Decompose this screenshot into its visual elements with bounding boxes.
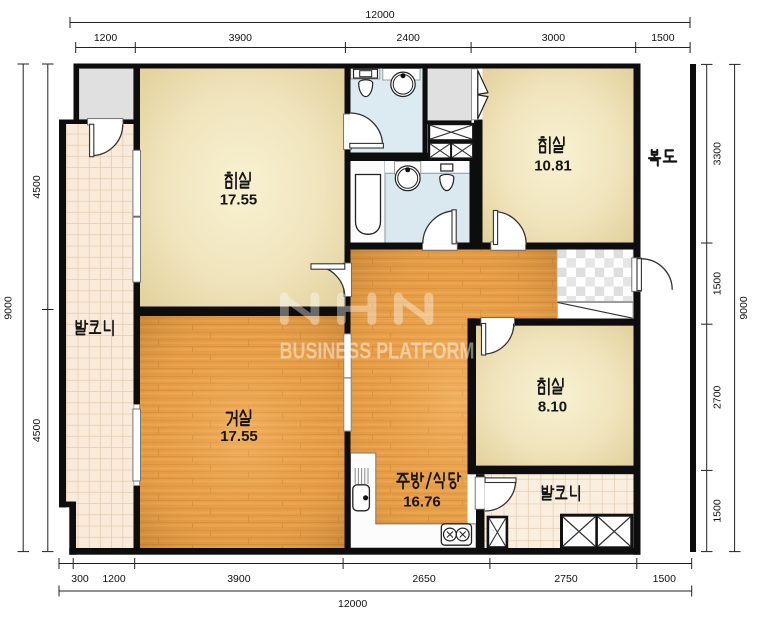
svg-text:17.55: 17.55 — [220, 192, 258, 209]
svg-text:1200: 1200 — [102, 573, 126, 585]
svg-text:2700: 2700 — [712, 385, 724, 409]
svg-text:1200: 1200 — [94, 32, 118, 44]
svg-text:1500: 1500 — [712, 272, 724, 296]
svg-text:4500: 4500 — [31, 419, 43, 443]
svg-text:9000: 9000 — [738, 296, 750, 320]
svg-text:9000: 9000 — [3, 296, 15, 320]
svg-text:8.10: 8.10 — [538, 399, 567, 416]
svg-text:3900: 3900 — [227, 573, 251, 585]
svg-text:BUSINESS PLATFORM: BUSINESS PLATFORM — [280, 338, 475, 364]
svg-text:3000: 3000 — [542, 32, 566, 44]
svg-text:17.55: 17.55 — [220, 428, 258, 445]
svg-text:16.76: 16.76 — [403, 494, 441, 511]
svg-text:3900: 3900 — [229, 32, 253, 44]
svg-text:300: 300 — [71, 573, 89, 585]
svg-text:3300: 3300 — [712, 142, 724, 166]
svg-text:1500: 1500 — [653, 573, 677, 585]
svg-text:12000: 12000 — [365, 9, 394, 21]
svg-text:1500: 1500 — [651, 32, 675, 44]
svg-text:4500: 4500 — [31, 175, 43, 199]
svg-text:2650: 2650 — [412, 573, 436, 585]
svg-text:10.81: 10.81 — [534, 158, 572, 175]
svg-text:2400: 2400 — [397, 32, 421, 44]
svg-text:2750: 2750 — [554, 573, 578, 585]
svg-text:1500: 1500 — [712, 499, 724, 523]
svg-text:12000: 12000 — [338, 598, 367, 610]
